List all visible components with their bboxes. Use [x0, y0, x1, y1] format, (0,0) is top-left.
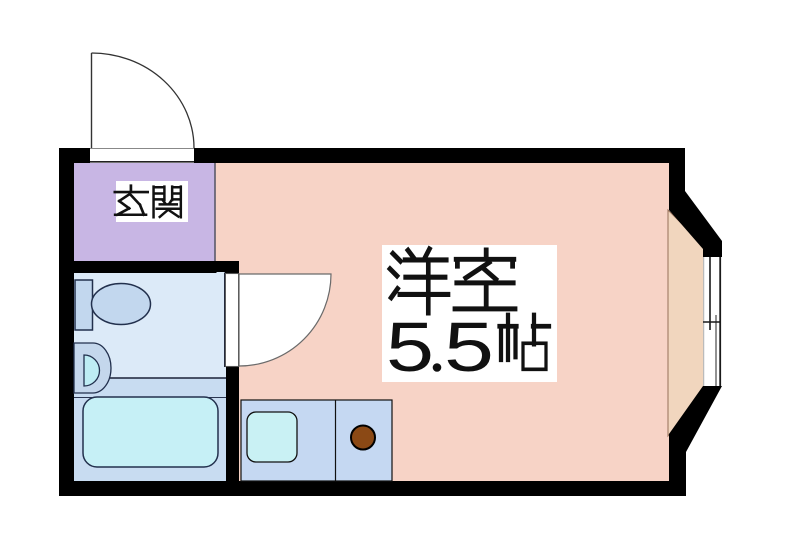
svg-text:5: 5: [444, 308, 494, 386]
svg-text:5: 5: [386, 308, 434, 386]
